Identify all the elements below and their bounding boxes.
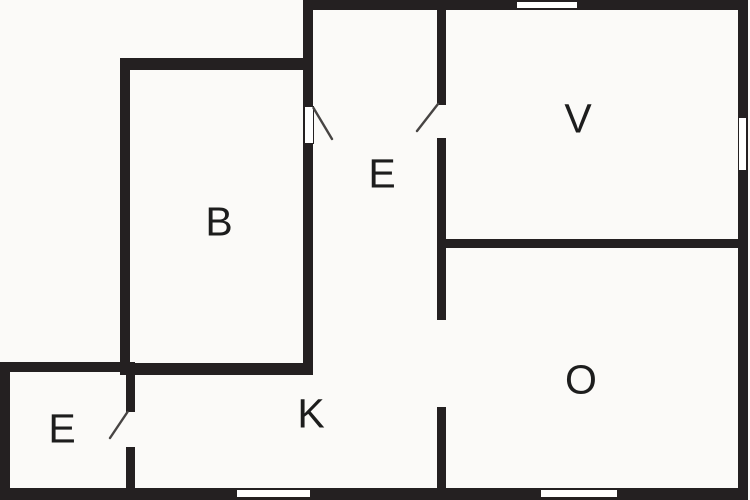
window-bottom-right [540,489,618,498]
wall-b-left [120,58,130,375]
wall-right [738,0,748,498]
room-label-entry-e: E [48,409,75,450]
wall-entry-right-upper [126,372,135,412]
wall-k-o-lower [437,407,446,488]
wall-b-bottom [120,363,313,375]
door-swing-room-v [417,104,438,131]
room-label-hall-e: E [368,154,395,195]
window-top-wall [516,1,578,9]
door-jamb-room-b [304,106,314,144]
wall-b-top [120,58,313,70]
wall-entry-right-lower [126,447,135,488]
room-label-v: V [564,99,591,140]
room-label-o: O [565,360,597,401]
room-label-k: K [297,394,324,435]
room-label-b: B [205,202,232,243]
door-swing-overlay [0,0,750,500]
wall-hall-v-upper [437,10,446,105]
wall-v-o-divider [437,239,748,248]
floor-plan: B E V K O E [0,0,750,500]
door-swing-room-b [314,108,333,139]
wall-left-lower [0,362,10,492]
door-swing-entry-e [110,412,128,438]
wall-bottom [0,488,748,500]
wall-hall-v-mid [437,138,446,320]
window-bottom-left [236,489,311,498]
window-right-wall [738,117,747,171]
wall-entry-top [0,362,135,372]
